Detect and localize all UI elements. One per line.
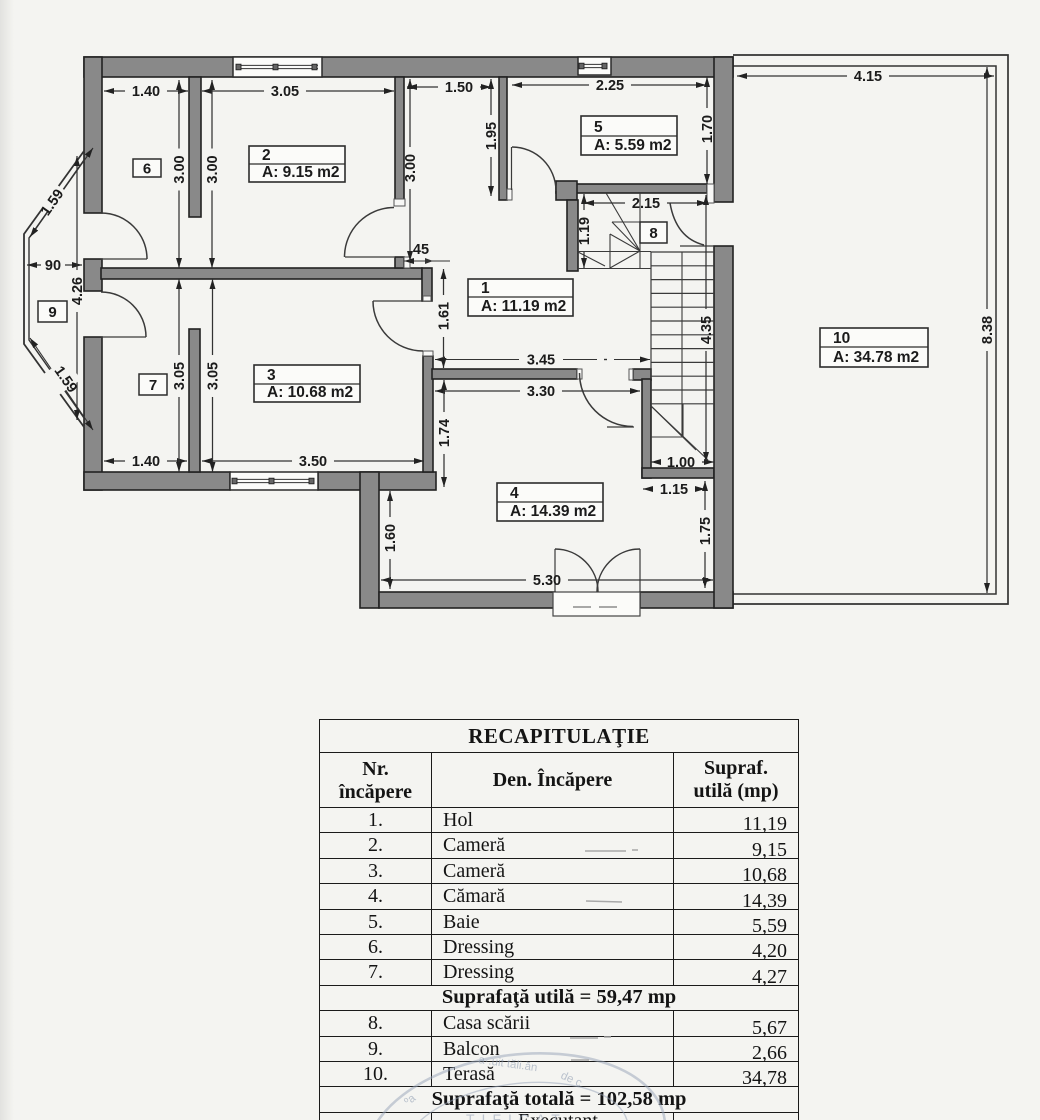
svg-text:a·.uit tăli.ăn: a·.uit tăli.ăn bbox=[478, 1054, 539, 1074]
svg-text:ȚIFICAT: ȚIFICAT bbox=[466, 1111, 567, 1120]
